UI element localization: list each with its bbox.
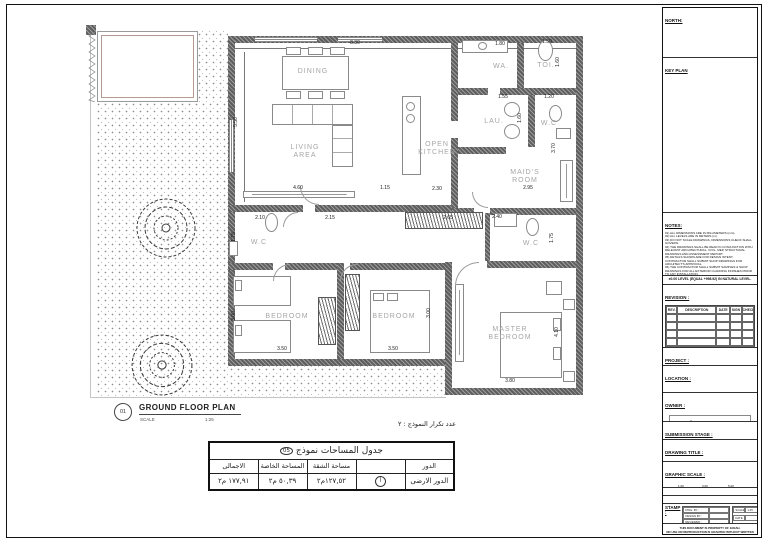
sink — [478, 42, 487, 50]
project-code-section: PROJECT CODE : — [663, 488, 757, 496]
plan-title-rule — [139, 414, 241, 415]
title-block: NORTH: KEY PLAN NOTES: 01) ALL DIMENSION… — [662, 7, 758, 535]
revision-empty-cell — [730, 338, 741, 346]
footer-note-line2: NO USE OR REPRODUCTION IS GRANTED WITHOU… — [665, 531, 755, 534]
submission-stage-label: SUBMISSION STAGE : — [665, 432, 713, 437]
pillow — [387, 293, 398, 301]
unit-circle: أ — [375, 476, 386, 487]
cooktop — [406, 114, 415, 123]
room-label: W.C — [541, 120, 557, 128]
washing-machine — [504, 124, 520, 139]
model-repeat-note: عدد تكرار النموذج : ٢ — [330, 420, 456, 428]
plan-number-bubble: 01 — [114, 403, 132, 421]
key-plan-label: KEY PLAN — [665, 68, 688, 73]
stamp-section: STAMP : DWG. BY :DESIGN BY :REVIEWED :AP… — [663, 504, 757, 524]
dining-chair — [308, 91, 323, 99]
patio-inner-edge — [101, 35, 194, 98]
cell-floor: الدور الارضى — [405, 473, 454, 490]
dining-chair — [286, 91, 301, 99]
revision-section: REVISION : REV.DESCRIPTIONDATESIGNCHECK — [663, 285, 757, 348]
revision-empty-cell — [666, 314, 677, 322]
sofa — [332, 125, 353, 167]
fence-zigzag — [88, 32, 96, 102]
dimension-label: 8.30 — [350, 40, 360, 46]
garden-paving — [228, 366, 445, 398]
north-section: NORTH: — [663, 8, 757, 58]
cell-total-area: ١٧٧,٩١ م٢ — [209, 473, 258, 490]
area-table: جدول المساحات نموذج 05 الدور مساحة الشقة… — [208, 441, 455, 491]
wardrobe — [345, 274, 360, 331]
door-swing — [273, 264, 290, 281]
wall-segment — [487, 261, 576, 268]
toilet — [265, 213, 278, 232]
stamp-date-label: DATE — [733, 515, 745, 521]
room-label: BEDROOM — [372, 313, 415, 321]
col-floor: الدور — [405, 459, 454, 473]
sink — [556, 128, 571, 139]
owner-logo: جـادة JADAH — [669, 415, 751, 422]
stamp-scale-value: 1:25 — [745, 507, 757, 513]
dimension-label: 1.20 — [544, 94, 554, 100]
revision-empty-cell — [666, 322, 677, 330]
revision-empty-cell — [742, 322, 754, 330]
stamp-table: DWG. BY :DESIGN BY :REVIEWED :APPROVED : — [682, 506, 730, 524]
level-note: ±0.00 LEVEL (EQUAL +998.92) IN NATURAL L… — [665, 277, 755, 281]
dining-chair — [330, 47, 345, 55]
note-line: 06) THE CONTRACTOR SHALL SUBMIT SAMPLES … — [665, 266, 755, 276]
project-label: PROJECT : — [665, 358, 689, 363]
revision-header-cell: REV. — [666, 306, 677, 314]
tv-unit — [455, 284, 464, 362]
drawing-sheet: DININGLIVING AREAOPEN KITCHENWA.TOI.LAU.… — [0, 0, 768, 542]
revision-empty-cell — [666, 338, 677, 346]
location-label: LOCATION : — [665, 376, 691, 381]
dimension-label: 3.80 — [505, 378, 515, 384]
dimension-label: 2.65 — [443, 215, 453, 221]
notes-label: NOTES: — [665, 223, 682, 228]
submission-section: SUBMISSION STAGE : SHOP DRAWING — [663, 422, 757, 440]
dimension-label: 2.95 — [523, 185, 533, 191]
toilet — [526, 218, 539, 236]
key-plan-section: KEY PLAN — [663, 58, 757, 213]
wall-segment — [517, 43, 524, 88]
plan-number: 01 — [120, 409, 126, 415]
sofa — [272, 104, 353, 125]
tree — [134, 196, 198, 260]
dimension-label: 1.75 — [231, 232, 237, 242]
island-sink — [406, 102, 415, 111]
wall-segment — [350, 263, 445, 270]
room-label: W.C — [251, 239, 267, 247]
drawing-title-section: DRAWING TITLE : نموذج رقم ٥ — [663, 440, 757, 462]
pillow — [553, 347, 561, 360]
dimension-label: 1.60 — [517, 113, 523, 123]
wall-segment — [458, 88, 488, 95]
revision-header-cell: CHECK — [742, 306, 754, 314]
wall-segment — [500, 88, 576, 95]
wall-segment — [445, 388, 583, 395]
revision-empty-cell — [742, 314, 754, 322]
drawing-title-label: DRAWING TITLE : — [665, 450, 703, 455]
revision-header-cell: SIGN — [730, 306, 741, 314]
cell-private-area: ٥٠,٣٩ م٢ — [258, 473, 307, 490]
revision-header-cell: DESCRIPTION — [677, 306, 716, 314]
revision-empty-cell — [677, 330, 716, 338]
area-table-title-text: جدول المساحات نموذج — [296, 446, 383, 456]
owner-section: OWNER : جـادة JADAH — [663, 393, 757, 422]
project-section: PROJECT : EL-KHUZUMA RESIDENTIAL BUILDIN… — [663, 348, 757, 366]
revision-empty-cell — [730, 314, 741, 322]
revision-empty-cell — [730, 330, 741, 338]
stamp-date-value — [745, 515, 757, 521]
room-label: DINING — [298, 68, 329, 76]
dimension-label: 3.00 — [426, 308, 432, 318]
dimension-label: 1.15 — [380, 185, 390, 191]
wall-segment — [451, 43, 458, 121]
dimension-label: 1.80 — [495, 41, 505, 47]
window — [229, 120, 234, 172]
wall-segment — [228, 359, 452, 366]
wall-segment — [458, 147, 506, 154]
room-label: LIVING AREA — [291, 144, 320, 160]
revision-empty-cell — [742, 330, 754, 338]
dimension-label: 4.60 — [293, 185, 303, 191]
dining-chair — [330, 91, 345, 99]
room-label: OPEN KITCHEN — [418, 141, 456, 157]
room-label: TOI. — [537, 62, 554, 70]
wall-segment — [445, 262, 452, 395]
wall-segment — [315, 205, 458, 212]
dimension-label: 1.75 — [549, 233, 555, 243]
revision-empty-cell — [666, 330, 677, 338]
dining-chair — [286, 47, 301, 55]
graphic-scale-label: GRAPHIC SCALE : — [665, 472, 705, 477]
stamp-label: STAMP : — [665, 505, 680, 524]
garden-paving — [196, 31, 228, 101]
wall-segment — [228, 263, 273, 270]
col-total-area: الاجمالى — [209, 459, 258, 473]
door-swing — [472, 192, 488, 208]
revision-empty-cell — [716, 314, 730, 322]
room-label: WA. — [493, 63, 509, 71]
notes-section: NOTES: 01) ALL DIMENSIONS ARE IN MILLIME… — [663, 213, 757, 276]
level-note-section: ±0.00 LEVEL (EQUAL +998.92) IN NATURAL L… — [663, 276, 757, 285]
dimension-label: 3.00 — [231, 311, 237, 321]
plan-scale-label: SCALE — [140, 417, 155, 422]
tv-console — [243, 191, 355, 198]
dimension-label: 2.10 — [255, 215, 265, 221]
tree — [129, 332, 195, 398]
revision-label: REVISION : — [665, 295, 689, 300]
owner-label: OWNER : — [665, 403, 685, 408]
maid-cabinet — [560, 160, 573, 202]
north-label: NORTH: — [665, 18, 683, 23]
plan-scale-value: 1:25 — [205, 417, 214, 422]
revision-header-cell: DATE — [716, 306, 730, 314]
room-label: BEDROOM — [265, 313, 308, 321]
dimension-label: 3.70 — [551, 143, 557, 153]
dimension-label: 3.50 — [388, 346, 398, 352]
col-apartment-area: مساحة الشقة — [307, 459, 356, 473]
col-unit — [356, 459, 405, 473]
stamp-scale-label: SCALE — [733, 507, 745, 513]
nightstand — [563, 371, 575, 382]
door-swing — [455, 262, 479, 286]
room-label: W.C — [523, 240, 539, 248]
revision-empty-cell — [742, 338, 754, 346]
dresser — [546, 281, 562, 295]
cell-unit: أ — [356, 473, 405, 490]
dimension-label: 1.60 — [555, 57, 561, 67]
drawing-number-section: DRAWING NUMBER : — [663, 496, 757, 504]
dimension-label: 5.50 — [233, 117, 239, 127]
door-swing — [283, 212, 298, 227]
dimension-label: 3.50 — [277, 346, 287, 352]
room-label: MASTER BEDROOM — [488, 326, 531, 342]
revision-empty-cell — [677, 338, 716, 346]
wall-segment — [485, 213, 490, 261]
dimension-label: 2.30 — [432, 186, 442, 192]
graphic-scale-section: GRAPHIC SCALE : 1.003.005.002.004.00 — [663, 462, 757, 488]
stamp-scale-table: SCALE1:25DATEREV. — [732, 506, 757, 524]
pillow — [235, 280, 242, 291]
location-section: LOCATION : — [663, 366, 757, 393]
footer-section: THIS DOCUMENT IS PROPERTY OF JADAH. NO U… — [663, 524, 757, 534]
dimension-label: 1.55 — [498, 94, 508, 100]
revision-empty-cell — [716, 322, 730, 330]
cell-apartment-area: ١٢٧,٥٢م٢ — [307, 473, 356, 490]
wall-segment — [285, 263, 337, 270]
dimension-label: 4.10 — [554, 327, 560, 337]
revision-table: REV.DESCRIPTIONDATESIGNCHECK — [665, 305, 755, 348]
revision-empty-cell — [677, 314, 716, 322]
sink — [229, 241, 238, 256]
wall-segment — [528, 95, 535, 147]
wardrobe — [318, 297, 336, 345]
nightstand — [563, 299, 575, 310]
dimension-line — [232, 48, 576, 49]
area-table-title: جدول المساحات نموذج 05 — [209, 442, 454, 459]
dimension-label: 2.40 — [492, 214, 502, 220]
wall-segment — [228, 205, 303, 212]
patio — [97, 31, 198, 102]
revision-empty-cell — [677, 322, 716, 330]
revision-empty-cell — [716, 338, 730, 346]
dining-chair — [308, 47, 323, 55]
wall-segment — [576, 36, 583, 395]
col-private-area: المساحة الخاصة — [258, 459, 307, 473]
notes-list: 01) ALL DIMENSIONS ARE IN MILLIMETERS (m… — [665, 232, 755, 276]
revision-empty-cell — [730, 322, 741, 330]
pillow — [373, 293, 384, 301]
dimension-line — [244, 52, 245, 202]
revision-empty-cell — [716, 330, 730, 338]
window — [255, 37, 317, 42]
dimension-label: 1.50 — [542, 39, 552, 45]
room-label: LAU. — [484, 118, 504, 126]
dimension-label: 2.15 — [325, 215, 335, 221]
room-label: MAID'S ROOM — [510, 169, 540, 185]
area-table-title-badge: 05 — [280, 447, 293, 455]
plan-title: GROUND FLOOR PLAN — [139, 403, 236, 412]
pillow — [235, 325, 242, 336]
